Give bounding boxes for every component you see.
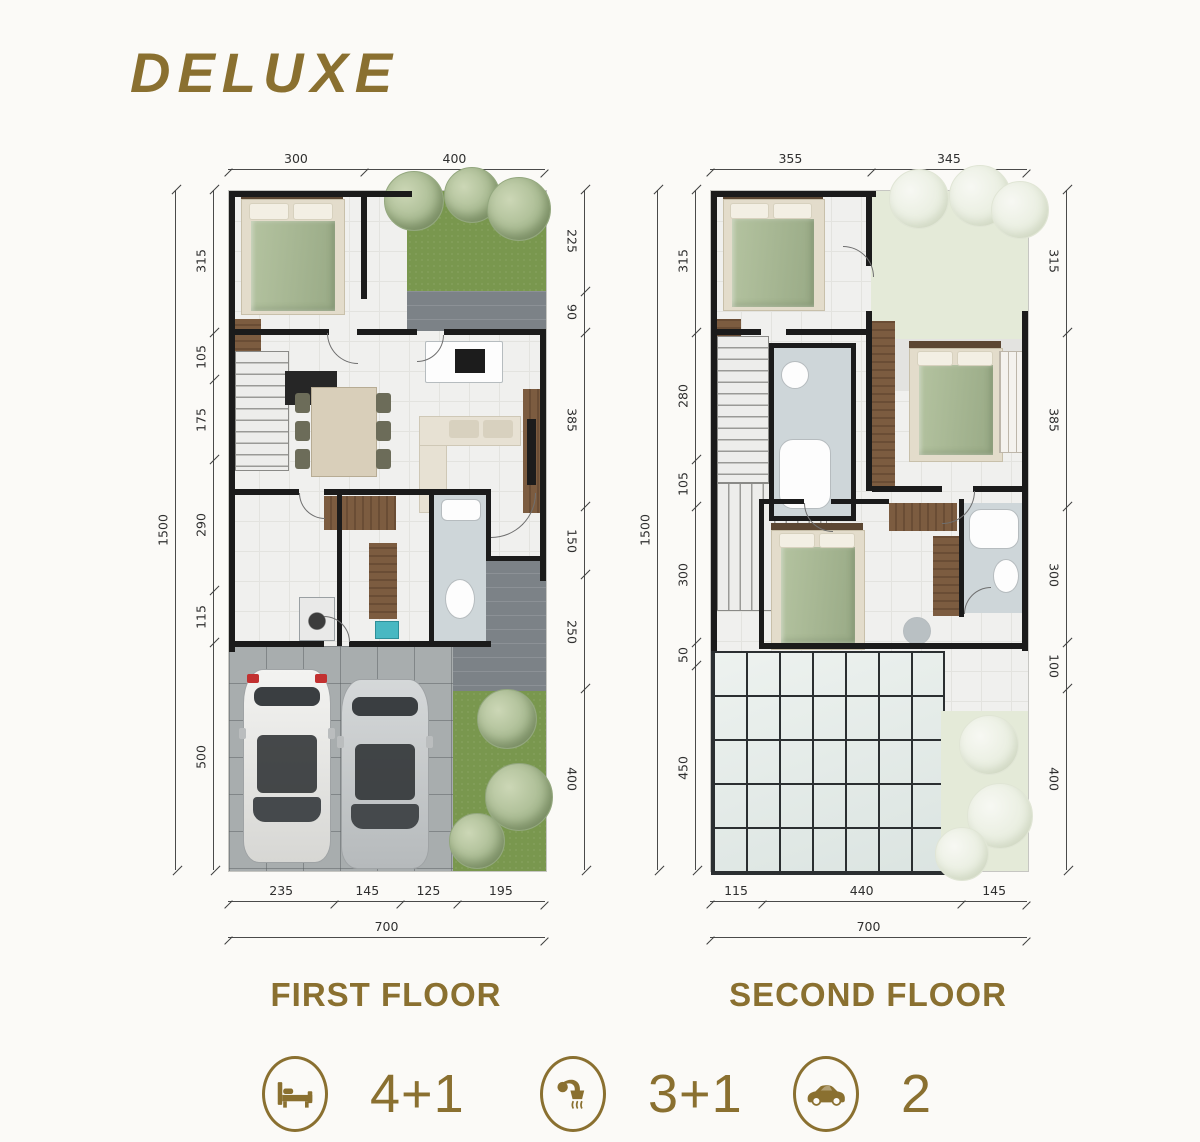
dim-segment: 385 [559, 333, 585, 508]
dimension-label: 1500 [637, 514, 652, 546]
taillight [315, 674, 327, 684]
dim-segment: 235 [228, 886, 334, 902]
pillow [730, 203, 769, 219]
tree-icon [384, 171, 444, 231]
second-floor-canvas [710, 190, 1029, 872]
dim-segment: 355 [710, 154, 871, 170]
wall [872, 486, 942, 492]
dim-segment: 450 [670, 666, 696, 870]
dimension-label: 400 [1046, 767, 1061, 791]
car-icon-glyph [805, 1081, 847, 1107]
door-arc [299, 493, 325, 519]
dimension-label: 250 [564, 620, 579, 644]
tree-icon [935, 827, 989, 881]
dimension-label: 315 [193, 249, 208, 273]
dim-segment: 115 [188, 591, 214, 643]
chair [376, 393, 391, 413]
tree-icon [449, 813, 505, 869]
dim-segment: 440 [762, 886, 961, 902]
dimension-label: 105 [193, 345, 208, 369]
wall [229, 641, 324, 647]
wall [229, 191, 412, 197]
dim-segment: 175 [188, 380, 214, 459]
dimension-label: 500 [193, 745, 208, 769]
wardrobe [871, 321, 895, 489]
tree-icon [487, 177, 551, 241]
wall [759, 643, 1024, 649]
dimension-label: 145 [982, 883, 1006, 898]
dim-chain-left: 315 105 175 290 115 500 [188, 190, 214, 870]
staircase [235, 351, 289, 471]
dim-segment: 225 [559, 190, 585, 292]
wall [349, 641, 491, 647]
pillow [249, 203, 289, 220]
dim-chain-right: 225 90 385 150 250 400 [559, 190, 585, 870]
dim-segment: 105 [670, 460, 696, 508]
dim-segment: 280 [670, 333, 696, 460]
sofa-cushion [483, 420, 513, 438]
sink [441, 499, 481, 521]
wall [973, 486, 1028, 492]
page-title: DELUXE [130, 40, 399, 105]
car-windshield [253, 797, 322, 822]
dim-segment: 150 [559, 507, 585, 575]
first-floor-plan: 300 400 315 105 175 290 115 500 1500 225… [228, 190, 545, 870]
dim-segment: 195 [457, 886, 545, 902]
shower-icon-glyph [554, 1075, 592, 1113]
tree-icon [889, 169, 949, 229]
wall [229, 191, 235, 652]
dim-segment: 145 [961, 886, 1027, 902]
dimension-label: 290 [193, 514, 208, 538]
dim-segment: 90 [559, 292, 585, 333]
dimension-label: 315 [1046, 249, 1061, 273]
dimension-label: 175 [193, 408, 208, 432]
wall [357, 329, 417, 335]
toilet [993, 559, 1019, 593]
cooktop [455, 349, 485, 373]
dim-segment: 400 [364, 154, 545, 170]
dimension-label: 385 [564, 408, 579, 432]
dimension-label: 700 [857, 919, 881, 934]
dim-segment: 345 [871, 154, 1027, 170]
door-arc [491, 493, 536, 538]
car-rear-window [352, 697, 417, 716]
dim-segment: 105 [188, 333, 214, 381]
dim-segment: 700 [710, 922, 1027, 938]
dimension-label: 345 [937, 151, 961, 166]
chair [295, 393, 310, 413]
dimension-label: 385 [1046, 408, 1061, 432]
dimension-label: 145 [355, 883, 379, 898]
dim-chain-bottom-total: 700 [228, 922, 545, 938]
dim-chain-bottom-total: 700 [710, 922, 1027, 938]
dimension-label: 450 [675, 756, 690, 780]
wall [711, 329, 761, 335]
dimension-label: 315 [675, 249, 690, 273]
shower-icon [540, 1056, 606, 1132]
dimension-label: 300 [284, 151, 308, 166]
door-arc [327, 333, 358, 364]
sofa-cushion [449, 420, 479, 438]
dimension-label: 1500 [155, 514, 170, 546]
dimension-label: 235 [269, 883, 293, 898]
tree-icon [991, 181, 1049, 239]
dim-segment: 300 [228, 154, 364, 170]
dim-segment: 125 [400, 886, 457, 902]
wall [324, 489, 490, 495]
wall [229, 329, 329, 335]
car-icon [793, 1056, 859, 1132]
car-roof [257, 735, 317, 793]
wall [769, 343, 856, 348]
wall [540, 331, 546, 581]
pillow [779, 533, 815, 548]
bathtub [969, 509, 1019, 549]
wall [229, 489, 299, 495]
dim-segment: 1500 [150, 190, 176, 870]
dim-segment: 145 [334, 886, 400, 902]
dimension-label: 50 [675, 647, 690, 663]
dim-chain-top: 300 400 [228, 154, 545, 170]
dresser [369, 543, 397, 619]
dimension-label: 440 [850, 883, 874, 898]
dim-segment: 115 [710, 886, 762, 902]
bed-blanket [781, 547, 855, 643]
car-mirror [337, 736, 344, 747]
dim-segment: 100 [1041, 643, 1067, 688]
dim-segment: 1500 [632, 190, 658, 870]
dim-chain-left: 315 280 105 300 50 450 [670, 190, 696, 870]
dim-segment: 50 [670, 643, 696, 666]
pillow [819, 533, 855, 548]
dimension-label: 105 [675, 472, 690, 496]
dim-segment: 250 [559, 575, 585, 688]
terrace-paving-top [407, 291, 546, 331]
taillight [247, 674, 259, 684]
dimension-label: 225 [564, 229, 579, 253]
dim-chain-left-total: 1500 [632, 190, 658, 870]
dimension-label: 115 [193, 605, 208, 629]
dimension-label: 280 [675, 384, 690, 408]
page: DELUXE 300 400 315 105 175 290 115 500 1… [0, 0, 1200, 1142]
second-floor-label: SECOND FLOOR [700, 976, 1036, 1014]
wall [851, 346, 856, 521]
bed-headboard [909, 341, 1001, 348]
dim-segment: 300 [1041, 507, 1067, 643]
wall [759, 499, 804, 504]
car-roof [355, 744, 415, 800]
dining-table [311, 387, 377, 477]
dim-segment: 315 [670, 190, 696, 333]
wall [1022, 311, 1028, 651]
tree-icon [477, 689, 537, 749]
sink [903, 617, 931, 645]
second-floor-plan: 355 345 315 280 105 300 50 450 1500 315 … [710, 190, 1027, 870]
wall [769, 346, 774, 521]
bath-mat [375, 621, 399, 639]
dimension-label: 400 [564, 767, 579, 791]
stat-bedrooms: 4+1 [262, 1056, 465, 1132]
closet-wardrobe [324, 496, 396, 530]
wall [759, 499, 764, 649]
door-arc [324, 616, 350, 642]
car-windshield [351, 804, 420, 828]
dim-chain-bottom: 115 440 145 [710, 886, 1027, 902]
dimension-label: 195 [489, 883, 513, 898]
dim-chain-bottom: 235 145 125 195 [228, 886, 545, 902]
dimension-label: 355 [778, 151, 802, 166]
chair [376, 421, 391, 441]
wall [361, 191, 367, 299]
dimension-label: 400 [442, 151, 466, 166]
dimension-label: 125 [416, 883, 440, 898]
pillow [917, 351, 953, 366]
car-mirror [426, 736, 433, 747]
wall [711, 191, 717, 651]
bed-blanket [919, 365, 993, 455]
chair [295, 421, 310, 441]
dim-segment: 315 [188, 190, 214, 333]
chair [295, 449, 310, 469]
dim-segment: 700 [228, 922, 545, 938]
dim-segment: 400 [1041, 689, 1067, 870]
dim-segment: 500 [188, 643, 214, 870]
wall [831, 499, 889, 504]
dim-segment: 400 [559, 689, 585, 870]
car-white [243, 669, 331, 863]
bedroom-count: 4+1 [370, 1063, 465, 1125]
dim-chain-right: 315 385 300 100 400 [1041, 190, 1067, 870]
bed-icon [262, 1056, 328, 1132]
dimension-label: 300 [675, 563, 690, 587]
wall [866, 311, 872, 491]
dimension-label: 700 [375, 919, 399, 934]
pillow [293, 203, 333, 220]
wardrobe [933, 536, 959, 616]
wall [711, 191, 876, 197]
dim-segment: 385 [1041, 333, 1067, 508]
car-mirror [239, 728, 246, 740]
car-mirror [328, 728, 335, 740]
dimension-label: 150 [564, 529, 579, 553]
chair [376, 449, 391, 469]
first-floor-canvas [228, 190, 547, 872]
dimension-label: 100 [1046, 654, 1061, 678]
car-silver [341, 679, 429, 869]
staircase [717, 336, 769, 483]
tree-icon [959, 715, 1019, 775]
wall [786, 329, 872, 335]
wall [866, 191, 872, 266]
bed-icon-glyph [275, 1077, 315, 1111]
bathroom-count: 3+1 [648, 1063, 743, 1125]
wall [489, 556, 546, 561]
wall [429, 489, 434, 646]
bed-blanket [732, 219, 814, 307]
wall [444, 329, 546, 335]
stat-bathrooms: 3+1 [540, 1056, 743, 1132]
dim-segment: 300 [670, 507, 696, 643]
skylight-roof [711, 651, 945, 875]
garage-count: 2 [901, 1063, 932, 1125]
stat-garage: 2 [793, 1056, 932, 1132]
bed-blanket [251, 221, 335, 311]
toilet [445, 579, 475, 619]
dimension-label: 90 [564, 304, 579, 320]
car-rear-window [254, 687, 319, 706]
dim-chain-left-total: 1500 [150, 190, 176, 870]
dimension-label: 300 [1046, 563, 1061, 587]
dim-segment: 290 [188, 460, 214, 591]
dimension-label: 115 [724, 883, 748, 898]
tv [527, 419, 536, 485]
pillow [957, 351, 993, 366]
pillow [773, 203, 812, 219]
first-floor-label: FIRST FLOOR [226, 976, 546, 1014]
sink [781, 361, 809, 389]
